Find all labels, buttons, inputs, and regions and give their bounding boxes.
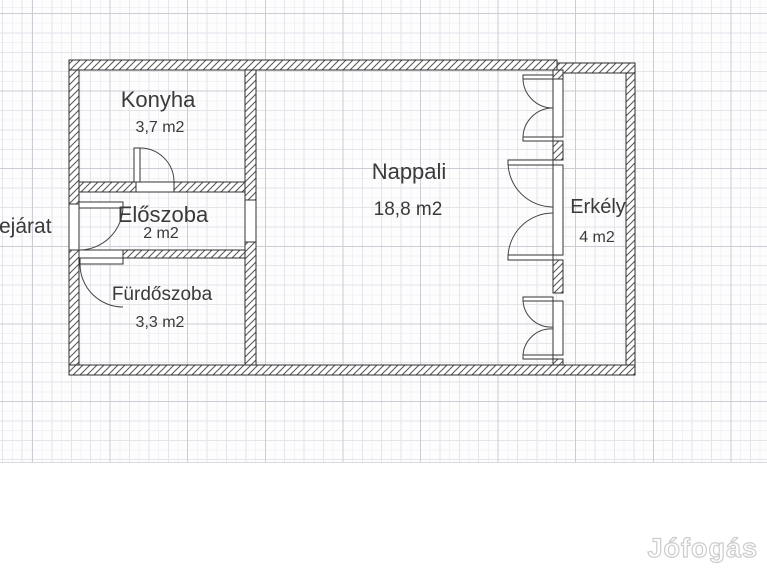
wall-right-balcony	[626, 73, 635, 365]
door-arc-balcony-2a	[508, 162, 553, 207]
room-label-konyha: Konyha	[121, 89, 196, 111]
room-label-nappali: Nappali	[372, 161, 447, 183]
floorplan-image: Konyha 3,7 m2 Előszoba 2 m2 Fürdőszoba 3…	[0, 0, 767, 575]
door-leaf-balcony-1b	[523, 137, 553, 141]
wall-top-main	[69, 60, 557, 70]
wall-interior-vertical-lower	[245, 242, 256, 365]
room-area-furdoszoba: 3,3 m2	[136, 315, 185, 331]
door-arc-balcony-1a	[523, 78, 553, 108]
door-leaf-furdoszoba	[80, 258, 123, 264]
opening-entrance	[69, 204, 79, 250]
entrance-label: Bejárat	[0, 216, 52, 237]
room-label-eloszoba: Előszoba	[118, 204, 209, 226]
door-arc-balcony-1b	[523, 108, 553, 138]
wall-top-balcony	[557, 63, 635, 73]
room-area-nappali: 18,8 m2	[374, 200, 443, 219]
opening-furdoszoba	[79, 250, 123, 258]
wall-eloszoba-furdoszoba	[123, 250, 245, 258]
room-area-konyha: 3,7 m2	[136, 120, 185, 136]
door-leaf-konyha	[134, 148, 140, 182]
opening-balcony-door-1	[553, 79, 563, 137]
wall-left-upper	[69, 70, 79, 204]
door-leaf-balcony-3a	[523, 297, 553, 301]
door-leaf-entrance	[79, 202, 123, 208]
door-arc-entrance	[79, 206, 123, 250]
wall-bottom	[69, 365, 635, 375]
wall-konyha-eloszoba-right	[174, 182, 245, 192]
door-leaf-balcony-2a	[508, 160, 553, 165]
wall-left-lower	[69, 250, 79, 365]
opening-balcony-door-2	[553, 165, 563, 255]
wall-divider-segment-1	[553, 141, 563, 160]
wall-divider-stub-bottom	[553, 359, 563, 365]
room-area-eloszoba: 2 m2	[143, 226, 179, 242]
wall-konyha-eloszoba-left	[79, 182, 136, 192]
door-arc-balcony-3a	[523, 299, 553, 327]
room-label-furdoszoba: Fürdőszoba	[112, 285, 212, 304]
door-leaf-balcony-2b	[508, 255, 553, 260]
room-label-erkely: Erkély	[570, 197, 626, 217]
door-leaf-balcony-3b	[523, 355, 553, 359]
opening-konyha	[136, 182, 174, 192]
door-arc-balcony-2b	[508, 213, 553, 258]
door-arc-konyha	[140, 148, 174, 182]
room-area-erkely: 4 m2	[579, 230, 615, 246]
jofogas-watermark: Jófogás	[647, 533, 758, 564]
door-leaf-balcony-1a	[523, 75, 553, 79]
opening-balcony-door-3	[553, 301, 563, 355]
wall-interior-vertical-upper	[245, 70, 256, 200]
wall-divider-stub-top	[553, 70, 563, 79]
opening-nappali-passage	[245, 200, 256, 242]
wall-divider-segment-2	[553, 260, 563, 293]
door-arc-balcony-3b	[523, 329, 553, 357]
